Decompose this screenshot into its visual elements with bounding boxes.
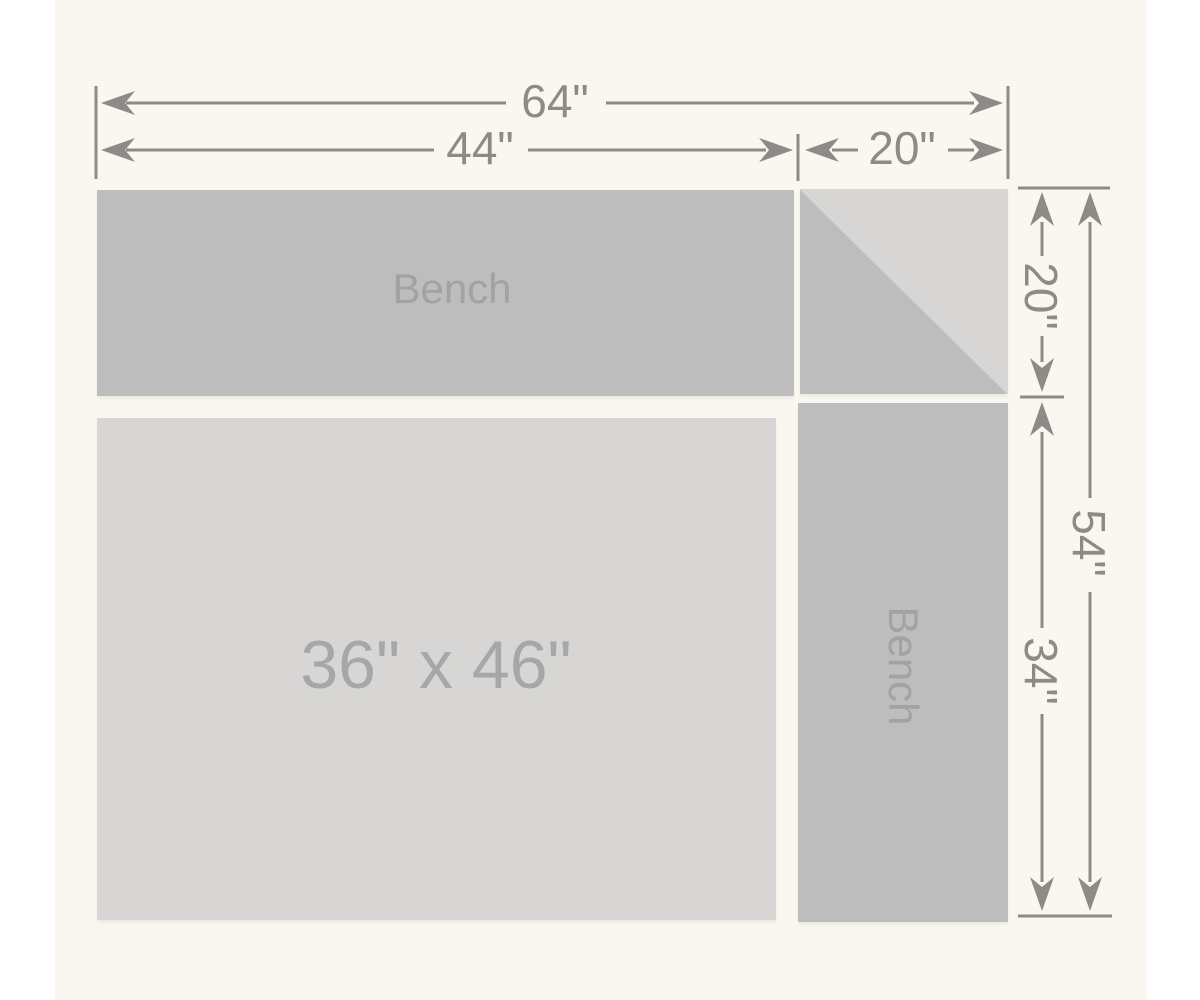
- arrow-down-icon: [1030, 358, 1054, 392]
- arrow-down-icon: [1030, 877, 1054, 911]
- floor-plan-diagram: 64" 44" 20" 20" 54" 34" Bench Bench 36" …: [0, 0, 1200, 1000]
- dimension-label-20-top: 20": [868, 125, 936, 171]
- bench-right-label: Bench: [882, 606, 924, 725]
- dimension-label-44: 44": [446, 125, 514, 171]
- dimension-label-20-right: 20": [1018, 262, 1064, 330]
- arrow-down-icon: [1078, 877, 1102, 911]
- dimension-label-64: 64": [521, 78, 589, 124]
- bench-top-label: Bench: [392, 268, 511, 310]
- arrow-up-icon: [1030, 192, 1054, 226]
- dimension-label-54: 54": [1066, 509, 1112, 577]
- table-size-label: 36" x 46": [300, 631, 571, 699]
- arrow-right-icon: [969, 138, 1003, 162]
- dimension-lines-layer: [0, 0, 1200, 1000]
- dimension-label-34: 34": [1018, 637, 1064, 705]
- arrow-up-icon: [1030, 402, 1054, 436]
- arrow-up-icon: [1078, 192, 1102, 226]
- arrow-right-icon: [969, 91, 1003, 115]
